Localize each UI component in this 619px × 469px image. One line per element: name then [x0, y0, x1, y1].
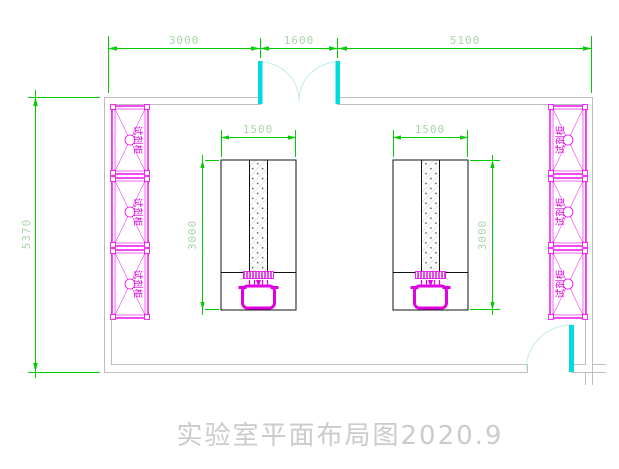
dim-label-top-middle: 1600 [284, 34, 315, 47]
dim-label-left-height: 5370 [20, 219, 33, 250]
reagent-cabinet: 试剂柜 [549, 177, 588, 248]
drawing-title: 实验室平面布局图2020.9 [177, 421, 504, 451]
door-swing-arc [260, 62, 299, 101]
dim-label-bench-right-depth: 3000 [476, 220, 489, 251]
reagent-cabinet: 试剂柜 [549, 105, 588, 176]
door-swing-arc [299, 62, 338, 101]
reagent-cabinet: 试剂柜 [111, 249, 150, 320]
floor-plan-canvas: 3000 1600 5100 5370 1500 1500 [0, 0, 619, 469]
cabinet-label: 试剂柜 [555, 197, 567, 226]
dimension-bench-left-depth [203, 155, 220, 315]
door-swing-arc [526, 325, 571, 370]
room-walls [104, 97, 606, 385]
door-leaf [336, 61, 341, 104]
door-leaf [258, 61, 263, 104]
cabinet-column-right: 试剂柜 试剂柜 试剂柜 [549, 105, 588, 320]
bench-hatched-duct [422, 161, 440, 273]
cabinet-label: 试剂柜 [555, 269, 567, 298]
reagent-cabinet: 试剂柜 [549, 249, 588, 320]
dimension-left-height [28, 90, 100, 378]
dim-label-bench-left-width: 1500 [243, 123, 274, 136]
lab-bench-right [393, 160, 468, 310]
dim-label-bench-right-width: 1500 [415, 123, 446, 136]
cabinet-column-left: 试剂柜 试剂柜 试剂柜 [111, 105, 150, 320]
cad-drawing-page: 3000 1600 5100 5370 1500 1500 [0, 0, 619, 469]
cabinet-label: 试剂柜 [132, 270, 144, 299]
reagent-cabinet: 试剂柜 [111, 177, 150, 248]
lab-bench-left [221, 160, 296, 310]
double-door-top [258, 61, 340, 104]
dim-label-top-left: 3000 [169, 34, 200, 47]
door-leaf [569, 325, 574, 372]
reagent-cabinet: 试剂柜 [111, 105, 150, 176]
dim-label-bench-left-depth: 3000 [186, 220, 199, 251]
door-bottom-right [526, 325, 574, 372]
cabinet-label: 试剂柜 [132, 126, 144, 155]
bench-hatched-duct [250, 161, 268, 273]
dim-label-top-right: 5100 [450, 34, 481, 47]
cabinet-label: 试剂柜 [132, 198, 144, 227]
cabinet-label: 试剂柜 [555, 125, 567, 154]
